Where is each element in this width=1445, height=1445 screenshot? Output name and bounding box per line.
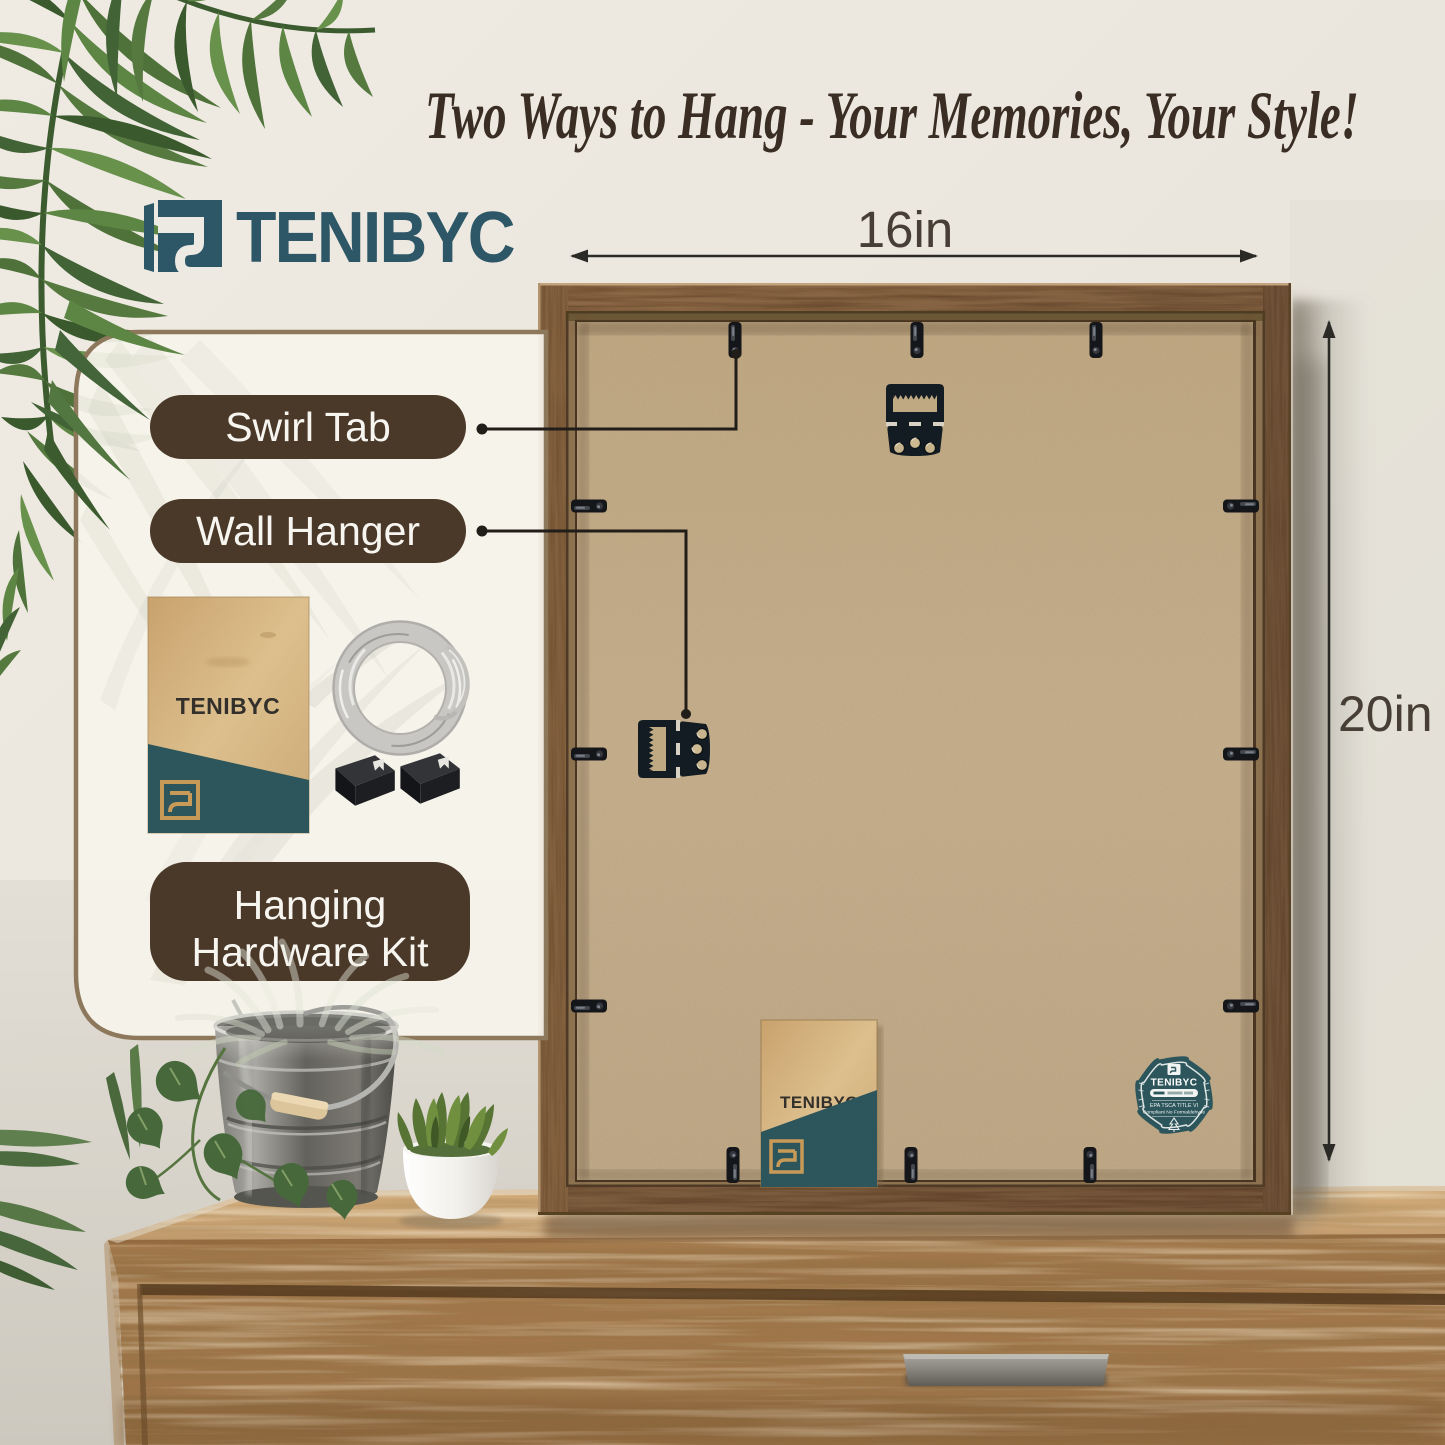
svg-text:Compliant No Formaldehyde: Compliant No Formaldehyde — [1143, 1110, 1206, 1116]
svg-text:Hanging: Hanging — [234, 882, 387, 928]
svg-text:EPA TSCA TITLE VI: EPA TSCA TITLE VI — [1150, 1103, 1198, 1109]
svg-text:Swirl Tab: Swirl Tab — [225, 404, 391, 450]
svg-text:Two Ways to Hang - Your Memori: Two Ways to Hang - Your Memories, Your S… — [425, 77, 1359, 153]
svg-text:20in: 20in — [1338, 686, 1433, 742]
svg-text:TENIBYC: TENIBYC — [236, 196, 515, 277]
svg-text:16in: 16in — [857, 201, 953, 258]
svg-text:TENIBYC: TENIBYC — [176, 693, 280, 719]
svg-text:Wall Hanger: Wall Hanger — [196, 508, 420, 554]
svg-text:TENIBYC: TENIBYC — [1151, 1078, 1198, 1089]
svg-text:Hardware Kit: Hardware Kit — [192, 929, 430, 975]
